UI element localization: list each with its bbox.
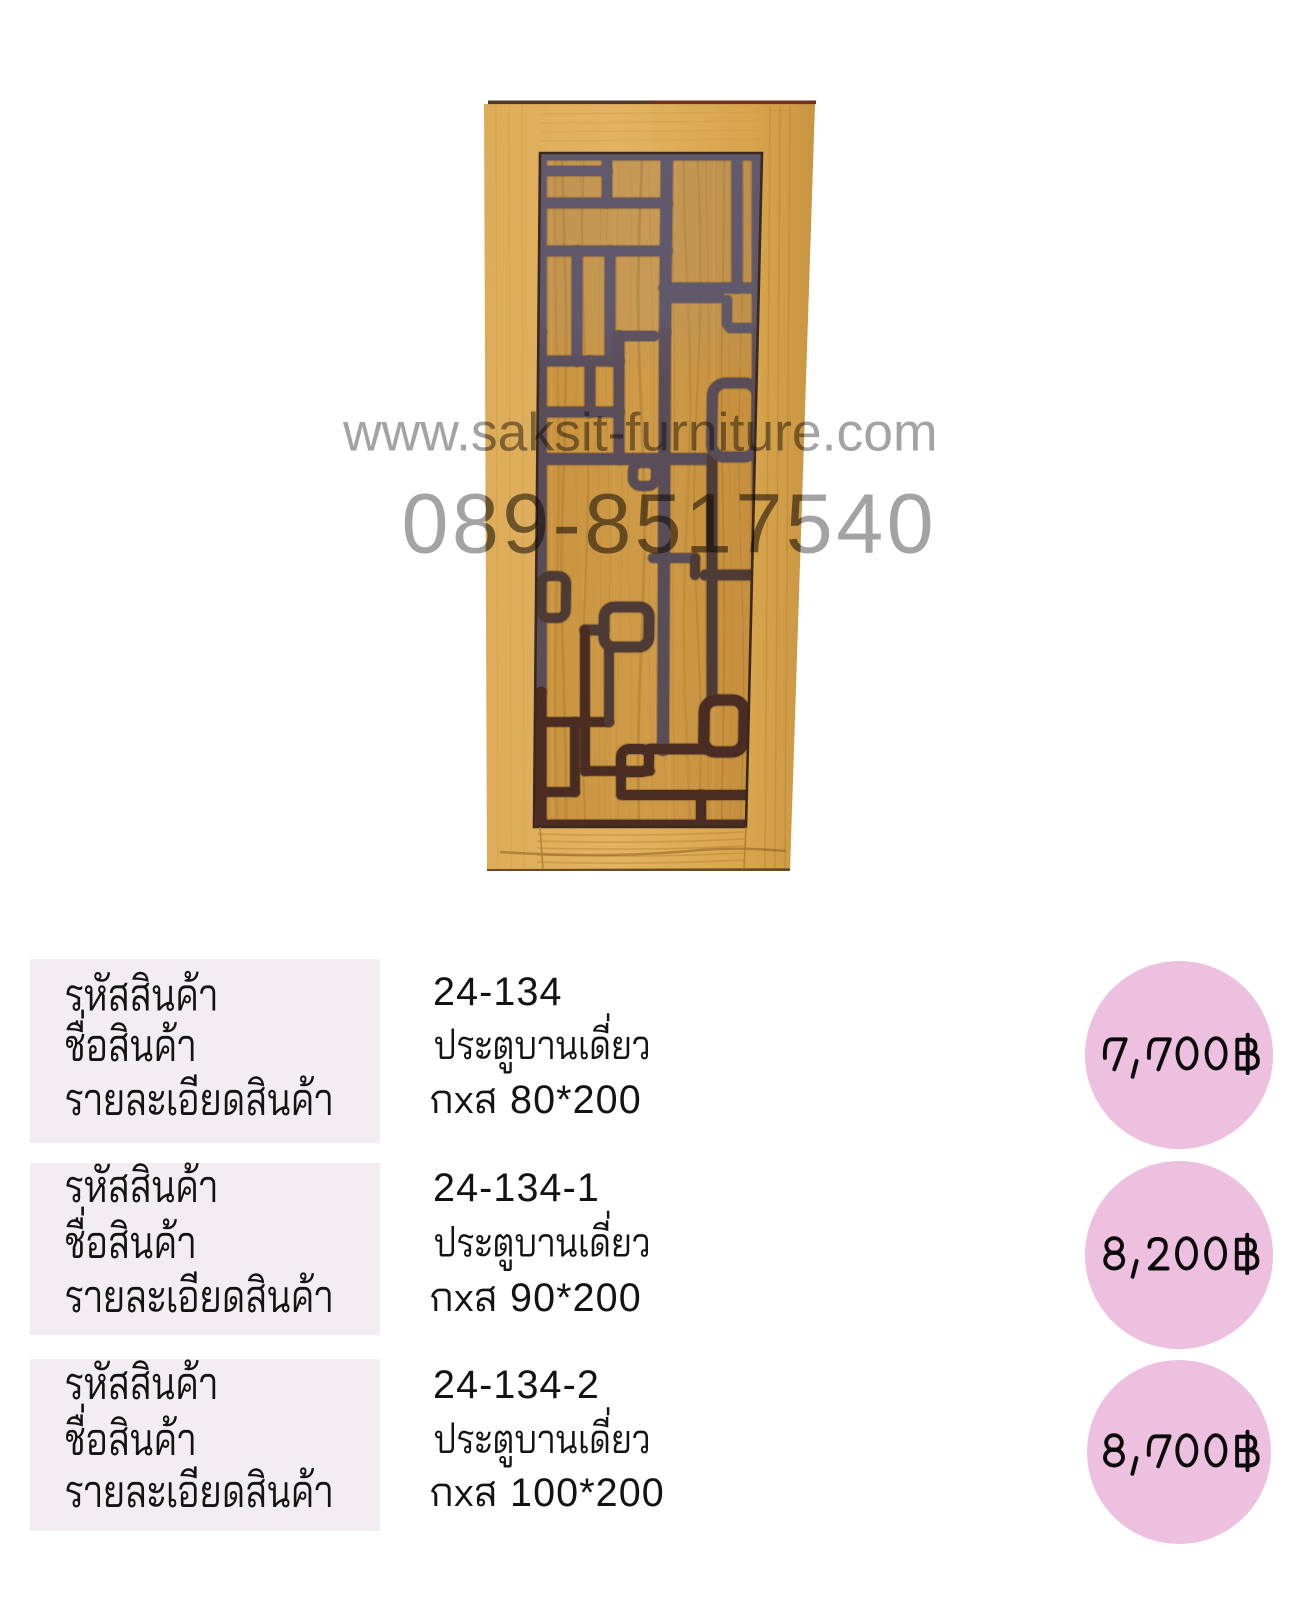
- svg-text:90*200: 90*200: [510, 1276, 642, 1320]
- svg-text:80*200: 80*200: [510, 1078, 642, 1122]
- svg-text:100*200: 100*200: [510, 1471, 665, 1515]
- svg-text:24-134-1: 24-134-1: [433, 1166, 600, 1210]
- svg-text:24-134-2: 24-134-2: [433, 1363, 600, 1407]
- svg-text:24-134: 24-134: [433, 970, 563, 1014]
